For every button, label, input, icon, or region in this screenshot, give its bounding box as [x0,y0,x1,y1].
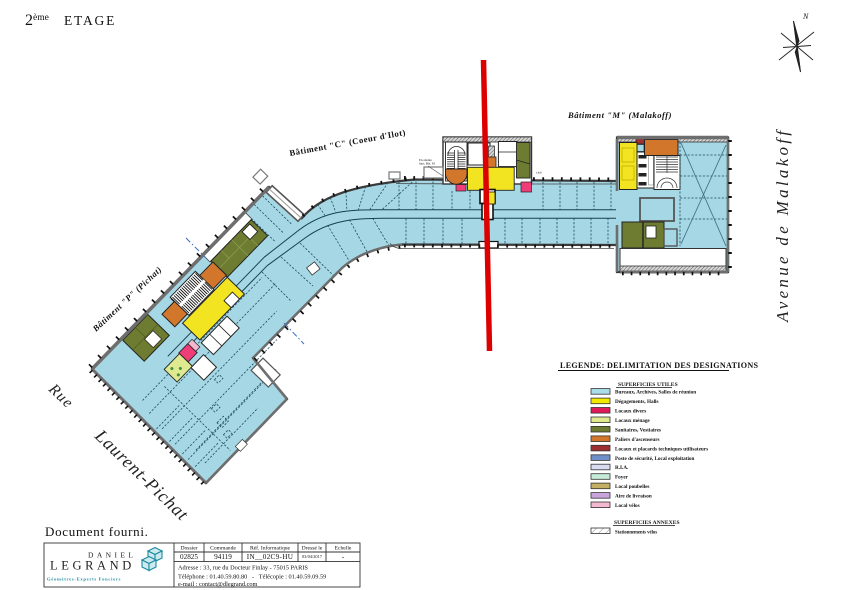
svg-text:Document fourni.: Document fourni. [45,524,149,539]
svg-text:2ème: 2ème [25,12,49,29]
svg-text:-: - [342,553,345,561]
svg-text:liais. Bât. M: liais. Bât. M [419,162,435,166]
svg-text:Bâtiment "M" (Malakoff): Bâtiment "M" (Malakoff) [567,110,672,120]
svg-text:02825: 02825 [180,553,198,561]
svg-text:R.I.A.: R.I.A. [615,465,629,471]
svg-text:Poste de sécurité, Local explo: Poste de sécurité, Local exploitation [615,456,694,462]
svg-text:Paliers d'ascenseurs: Paliers d'ascenseurs [615,437,660,443]
svg-text:SUPERFICIES UTILES: SUPERFICIES UTILES [618,382,678,388]
svg-text:LEGENDE: DELIMITATION DES DESI: LEGENDE: DELIMITATION DES DESIGNATIONS [560,361,758,370]
svg-text:Réf. Informatique: Réf. Informatique [250,545,291,552]
svg-text:Téléphone : 01.40.59.80.80: Téléphone : 01.40.59.80.80 - Télécopie :… [178,574,326,581]
svg-text:Sanitaires, Vestiaires: Sanitaires, Vestiaires [615,427,661,433]
svg-text:Dressé le: Dressé le [302,546,323,552]
svg-text:Locaux ménage: Locaux ménage [615,418,650,424]
svg-text:Local poubelles: Local poubelles [615,484,649,490]
svg-text:94119: 94119 [214,553,232,561]
svg-text:Bâtiment "C" (Coeur d'Ilot): Bâtiment "C" (Coeur d'Ilot) [289,127,407,158]
svg-text:Dossier: Dossier [180,546,197,552]
svg-text:Stationnements vélos: Stationnements vélos [615,531,657,536]
svg-text:LEGRAND: LEGRAND [50,559,135,573]
svg-text:Aire de livraison: Aire de livraison [615,494,652,500]
svg-text:03/04/2017: 03/04/2017 [302,554,323,559]
svg-text:Locaux divers: Locaux divers [615,409,646,415]
svg-text:Bureaux, Archives, Salles de r: Bureaux, Archives, Salles de réunion [615,390,696,396]
svg-text:Adresse : 33, rue du Doct: Adresse : 33, rue du Docteur Finlay - 75… [178,565,308,572]
svg-text:IN__02C9-HU: IN__02C9-HU [247,553,294,561]
svg-text:N: N [802,12,809,21]
svg-text:Géomètres-Experts Fonciers: Géomètres-Experts Fonciers [47,577,121,582]
svg-text:e-mail : contact@dlegrand.co: e-mail : contact@dlegrand.com [178,581,258,588]
svg-text:Locaux et placards techniques: Locaux et placards techniques utilisateu… [615,446,708,452]
svg-text:Dégagements, Halls: Dégagements, Halls [615,399,659,405]
svg-text:Rue: Rue [45,380,77,412]
svg-text:SUPERFICIES ANNEXES: SUPERFICIES ANNEXES [614,520,680,526]
svg-text:s.hall: s.hall [536,172,542,175]
svg-text:ETAGE: ETAGE [64,13,116,28]
svg-text:Avenue de Malakoff: Avenue de Malakoff [773,128,792,323]
svg-text:Local vélos: Local vélos [615,503,640,509]
svg-text:Commande: Commande [210,546,236,552]
svg-text:Echelle: Echelle [335,546,352,552]
svg-text:Foyer: Foyer [615,475,629,481]
